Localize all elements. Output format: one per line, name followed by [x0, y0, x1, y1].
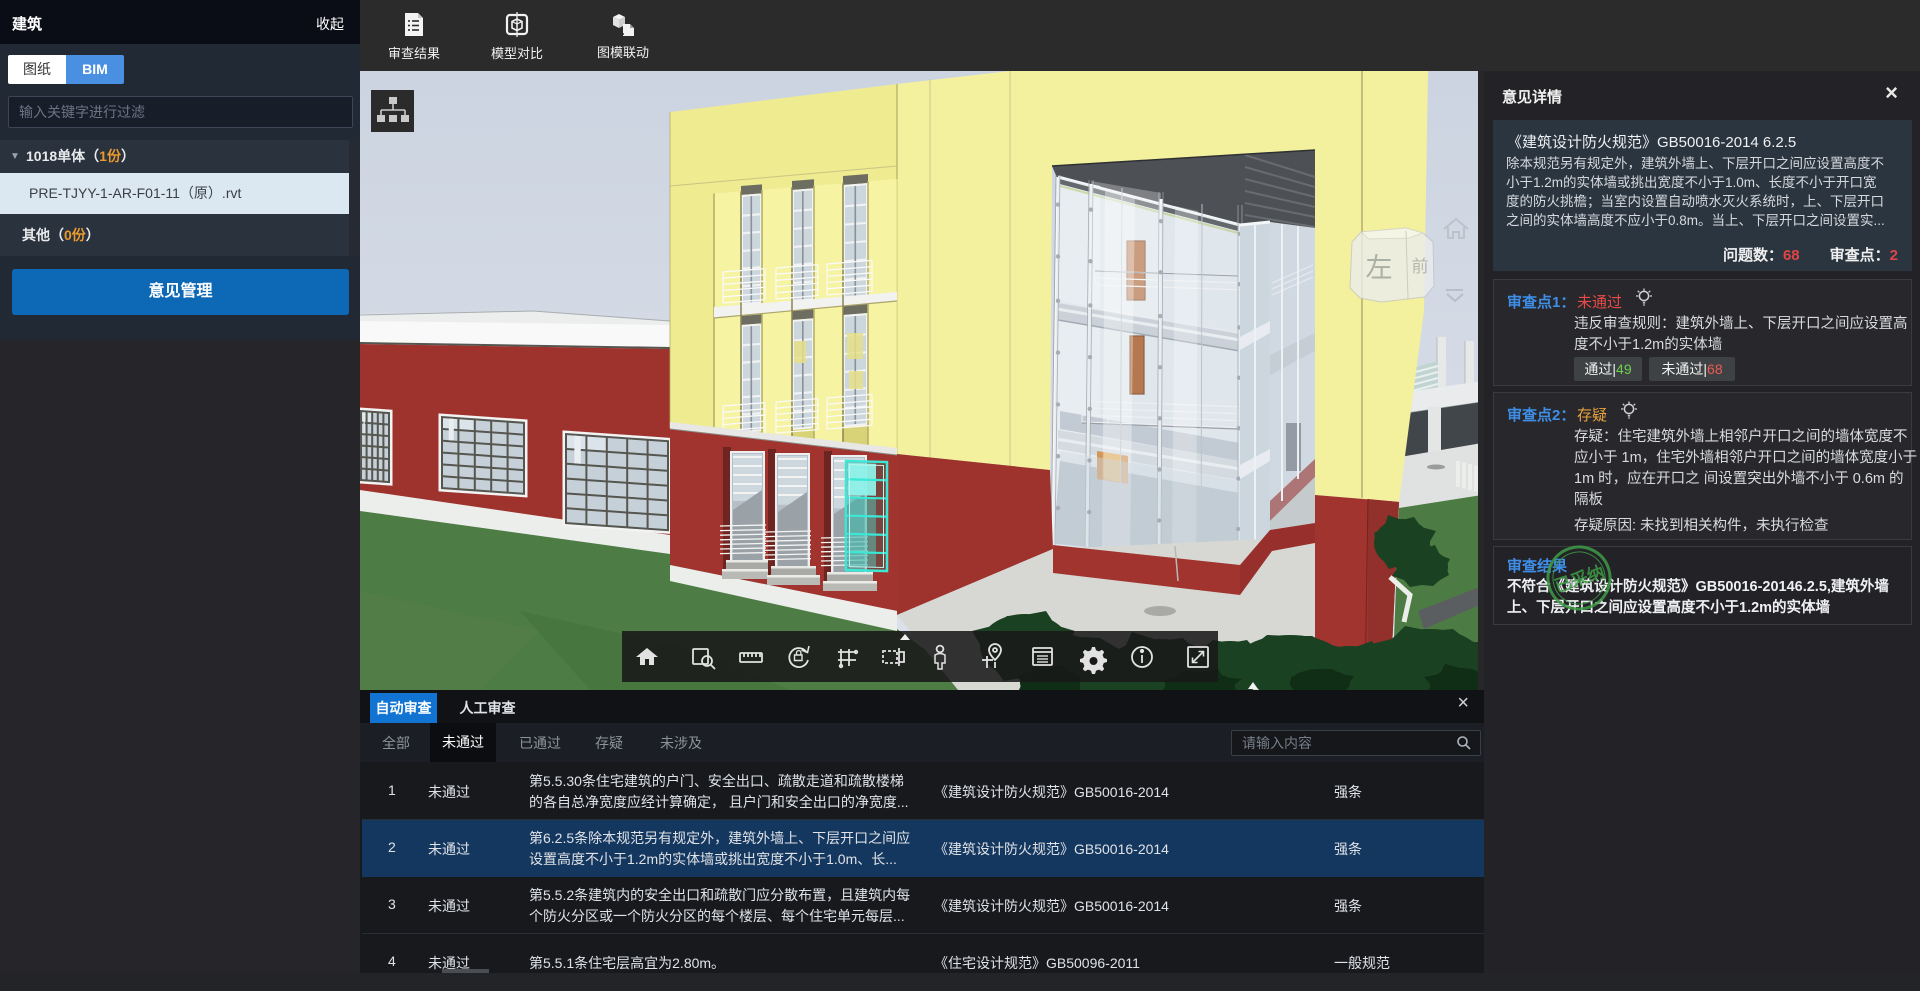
svg-text:已采纳: 已采纳: [1552, 562, 1607, 597]
svg-text:前: 前: [1412, 257, 1429, 276]
svg-text:左: 左: [1366, 253, 1393, 283]
